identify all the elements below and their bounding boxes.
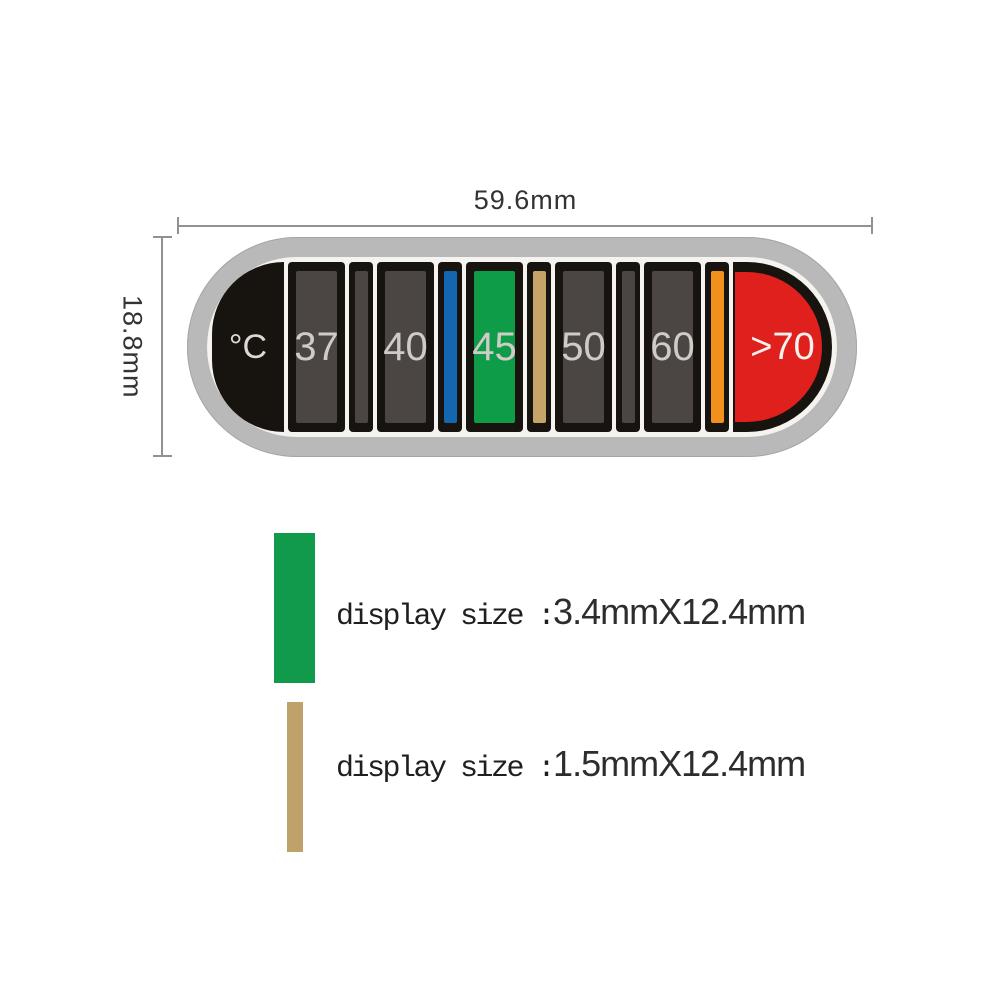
cell-fill-cell_dark bbox=[622, 271, 635, 423]
width-dimension-line bbox=[178, 225, 873, 227]
cell-fill-tan bbox=[533, 271, 546, 423]
temperature-label-over-70: >70 bbox=[733, 262, 832, 432]
legend-tan-value: 1.5mmX12.4mm bbox=[553, 744, 805, 784]
height-dimension-line bbox=[161, 237, 163, 457]
product-diagram: 59.6mm 18.8mm °C3740455060>70 display si… bbox=[0, 0, 1001, 1001]
temperature-label-60: 60 bbox=[644, 262, 701, 432]
cell-45: 45 bbox=[466, 262, 523, 432]
cell-indicator-blue bbox=[438, 262, 462, 432]
cell-indicator-orange bbox=[705, 262, 729, 432]
width-dimension-tick-right bbox=[871, 217, 873, 234]
width-dimension-tick-left bbox=[177, 217, 179, 234]
thermometer-strip: °C3740455060>70 bbox=[187, 237, 857, 457]
cell-indicator-cell_dark bbox=[349, 262, 373, 432]
cell-indicator-cell_dark bbox=[616, 262, 640, 432]
legend-swatch-tan bbox=[287, 702, 303, 852]
cell-fill-cell_dark bbox=[355, 271, 368, 423]
cell-50: 50 bbox=[555, 262, 612, 432]
legend-green-value: 3.4mmX12.4mm bbox=[553, 592, 805, 632]
cell-indicator-tan bbox=[527, 262, 551, 432]
cell-40: 40 bbox=[377, 262, 434, 432]
temperature-label-40: 40 bbox=[377, 262, 434, 432]
legend-swatch-green bbox=[274, 533, 315, 683]
celsius-label: °C bbox=[229, 330, 267, 364]
cell-37: 37 bbox=[288, 262, 345, 432]
strip-cells: °C3740455060>70 bbox=[212, 262, 832, 432]
cell-60: 60 bbox=[644, 262, 701, 432]
width-dimension-label: 59.6mm bbox=[178, 185, 873, 216]
cell-celsius-cap: °C bbox=[212, 262, 284, 432]
temperature-label-45: 45 bbox=[466, 262, 523, 432]
cell-fill-orange bbox=[711, 271, 724, 423]
cell-fill-blue bbox=[444, 271, 457, 423]
height-dimension-tick-bottom bbox=[153, 455, 172, 457]
legend-row-tan: display size :1.5mmX12.4mm bbox=[336, 744, 805, 786]
legend-row-green: display size :3.4mmX12.4mm bbox=[336, 592, 805, 634]
height-dimension-label: 18.8mm bbox=[112, 237, 152, 457]
legend-green-prefix: display size : bbox=[336, 601, 553, 634]
cell-over-70-cap: >70 bbox=[733, 262, 832, 432]
legend-tan-prefix: display size : bbox=[336, 753, 553, 786]
temperature-label-37: 37 bbox=[288, 262, 345, 432]
strip-face: °C3740455060>70 bbox=[207, 257, 837, 437]
temperature-label-50: 50 bbox=[555, 262, 612, 432]
height-dimension-tick-top bbox=[153, 236, 172, 238]
